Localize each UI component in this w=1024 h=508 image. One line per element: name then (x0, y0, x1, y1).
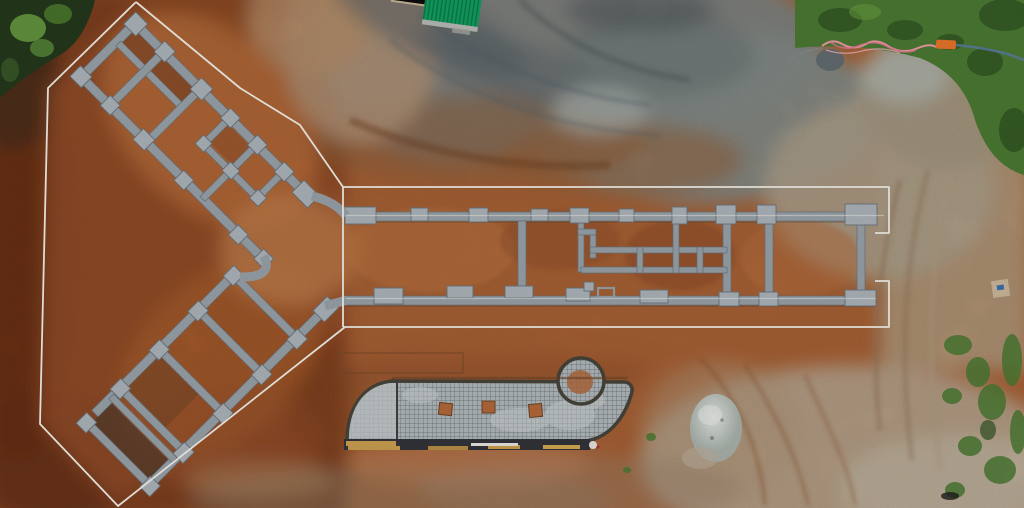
photo-grain (0, 0, 1024, 508)
construction-site-photo: Top-down drone photo of a construction s… (0, 0, 1024, 508)
